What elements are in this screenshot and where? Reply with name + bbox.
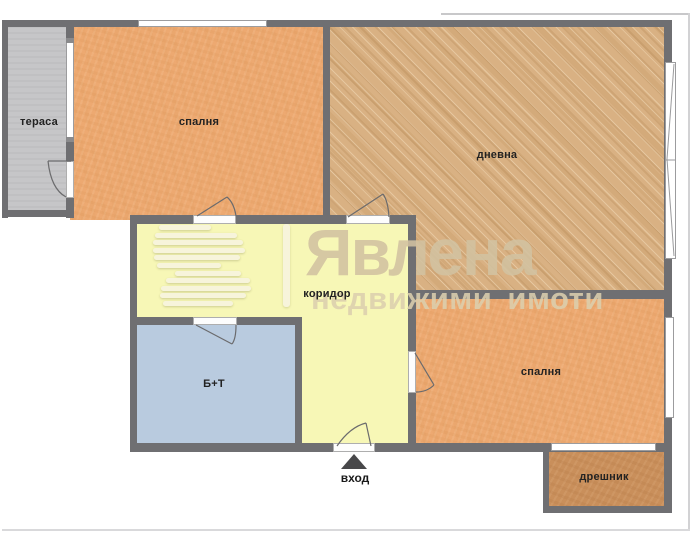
room-corridor-lower — [296, 315, 414, 448]
window-closet-top — [551, 443, 656, 451]
window-terrace — [66, 42, 74, 138]
door-terrace — [66, 161, 74, 198]
door-entrance — [333, 443, 375, 452]
label-bathroom: Б+Т — [203, 378, 225, 390]
wall-bathroom-right — [295, 317, 302, 452]
frame-line-bottom — [2, 529, 690, 531]
label-bedroom-bottom: спалня — [521, 366, 561, 378]
wall-living-bottom — [409, 290, 668, 299]
entrance-arrow-icon — [341, 454, 367, 469]
room-corridor-upper — [134, 219, 413, 322]
wall-terrace-left — [2, 20, 8, 218]
label-closet: дрешник — [579, 471, 628, 483]
wall-living-left — [323, 20, 330, 224]
label-bedroom-top: спалня — [179, 116, 219, 128]
door-bedroom-top — [193, 215, 236, 224]
label-living: дневна — [477, 149, 517, 161]
entrance-label: вход — [341, 471, 370, 485]
window-living-right — [665, 62, 676, 259]
door-bathroom — [193, 317, 237, 325]
window-bedroom-bottom-right — [665, 317, 674, 418]
frame-line-right — [688, 13, 690, 530]
door-bedroom-bottom — [408, 351, 416, 393]
window-terrace-cap-bottom — [66, 137, 74, 142]
wall-terrace-top — [2, 20, 74, 27]
wall-closet-bottom — [543, 506, 672, 513]
wall-terrace-bottom — [2, 210, 74, 217]
window-terrace-cap-top — [66, 38, 74, 43]
frame-line-top — [441, 13, 690, 15]
wall-corridor-left — [130, 215, 137, 452]
label-corridor: коридор — [303, 288, 350, 300]
wall-closet-left — [543, 449, 549, 511]
label-terrace: тераса — [20, 116, 58, 128]
floor-plan-canvas: Явлена недвижими имоти тераса спалня дне… — [0, 0, 693, 533]
window-bedroom-top — [138, 20, 267, 27]
wall-mid-vertical — [408, 215, 416, 452]
door-living — [346, 215, 390, 224]
